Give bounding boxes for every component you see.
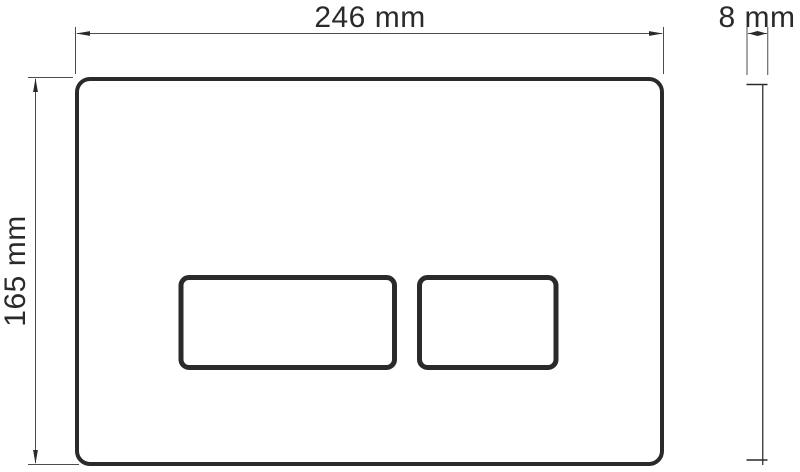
dimension-width: 246 mm <box>76 1 664 74</box>
technical-drawing: 246 mm 8 mm 165 mm <box>0 0 800 472</box>
dimension-thickness: 8 mm <box>719 1 796 75</box>
height-arrow-up-icon <box>33 78 38 92</box>
height-arrow-down-icon <box>33 450 38 464</box>
width-dimension-label: 246 mm <box>314 1 425 34</box>
height-dimension-label: 165 mm <box>0 215 32 326</box>
thickness-dimension-label: 8 mm <box>719 1 796 34</box>
plate-side-outline <box>747 78 767 465</box>
dimension-height: 165 mm <box>0 78 79 465</box>
flush-button-small <box>420 278 557 368</box>
plate-front-outline <box>77 79 662 464</box>
flush-button-large <box>181 278 395 368</box>
width-arrow-left-icon <box>76 31 90 36</box>
width-arrow-right-icon <box>649 31 663 36</box>
front-view <box>77 79 662 464</box>
side-view <box>747 78 768 465</box>
